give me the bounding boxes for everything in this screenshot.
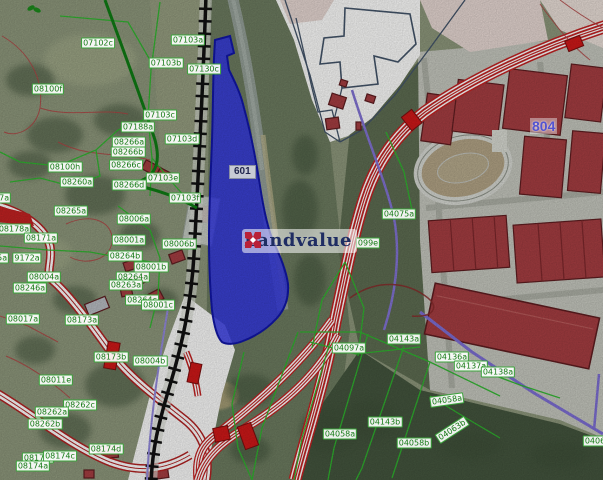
x-cross-icon (242, 229, 264, 251)
landvalue-watermark: Landvalue (242, 229, 357, 253)
zone-id-label: 804 (530, 118, 557, 134)
gis-map-canvas[interactable]: 07102c08100f07103a07103b07130c07103c0718… (0, 0, 603, 480)
highlighted-parcel-id-label: 601 (229, 165, 256, 179)
